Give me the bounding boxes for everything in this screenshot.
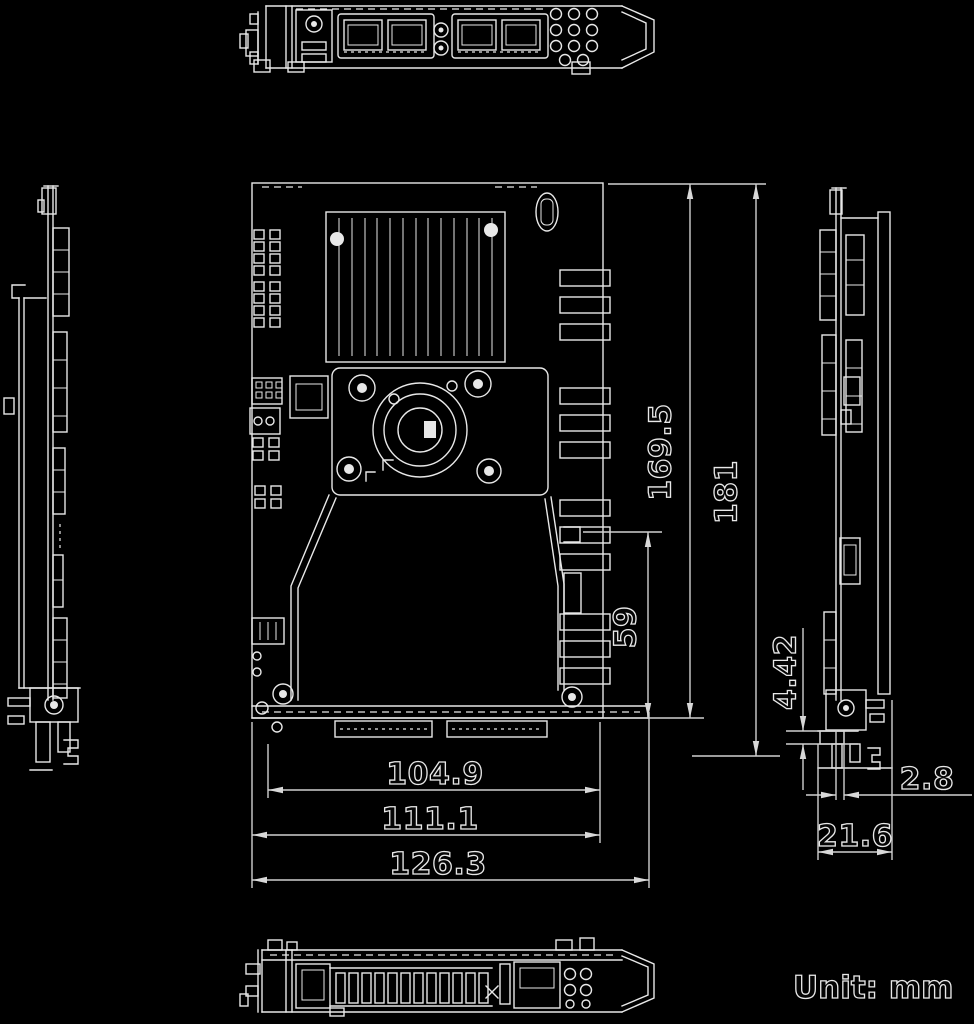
- fan-assembly: [332, 368, 548, 495]
- dimension-drawing: 169.5 181 59 104.9 111.1 126.3 4.42 2.8 …: [0, 0, 974, 1024]
- dim-bracket-offset: 2.8: [900, 762, 955, 797]
- dim-overall-width: 126.3: [389, 847, 486, 882]
- fin-slots: [336, 973, 488, 1003]
- io-headers-left: [250, 230, 328, 676]
- pcie-edge-connector: [335, 721, 547, 737]
- dim-connector-width: 104.9: [386, 757, 483, 792]
- left-side-view: [4, 186, 80, 770]
- right-side-view: [818, 188, 892, 769]
- unit-note: Unit: mm: [793, 970, 953, 1006]
- dim-pcb-length: 169.5: [644, 403, 679, 500]
- top-edge-view: [240, 6, 654, 74]
- bottom-edge-view: [240, 938, 654, 1016]
- vent-holes: [551, 9, 598, 66]
- heatsink-fins: [326, 212, 505, 362]
- dim-bracket-depth: 21.6: [817, 819, 893, 854]
- front-view: [250, 183, 648, 737]
- dim-pcb-width: 111.1: [381, 802, 478, 837]
- dim-shroud-section: 59: [609, 606, 644, 649]
- dim-overall-length: 181: [710, 460, 745, 524]
- dim-bracket-tab: 4.42: [769, 634, 804, 710]
